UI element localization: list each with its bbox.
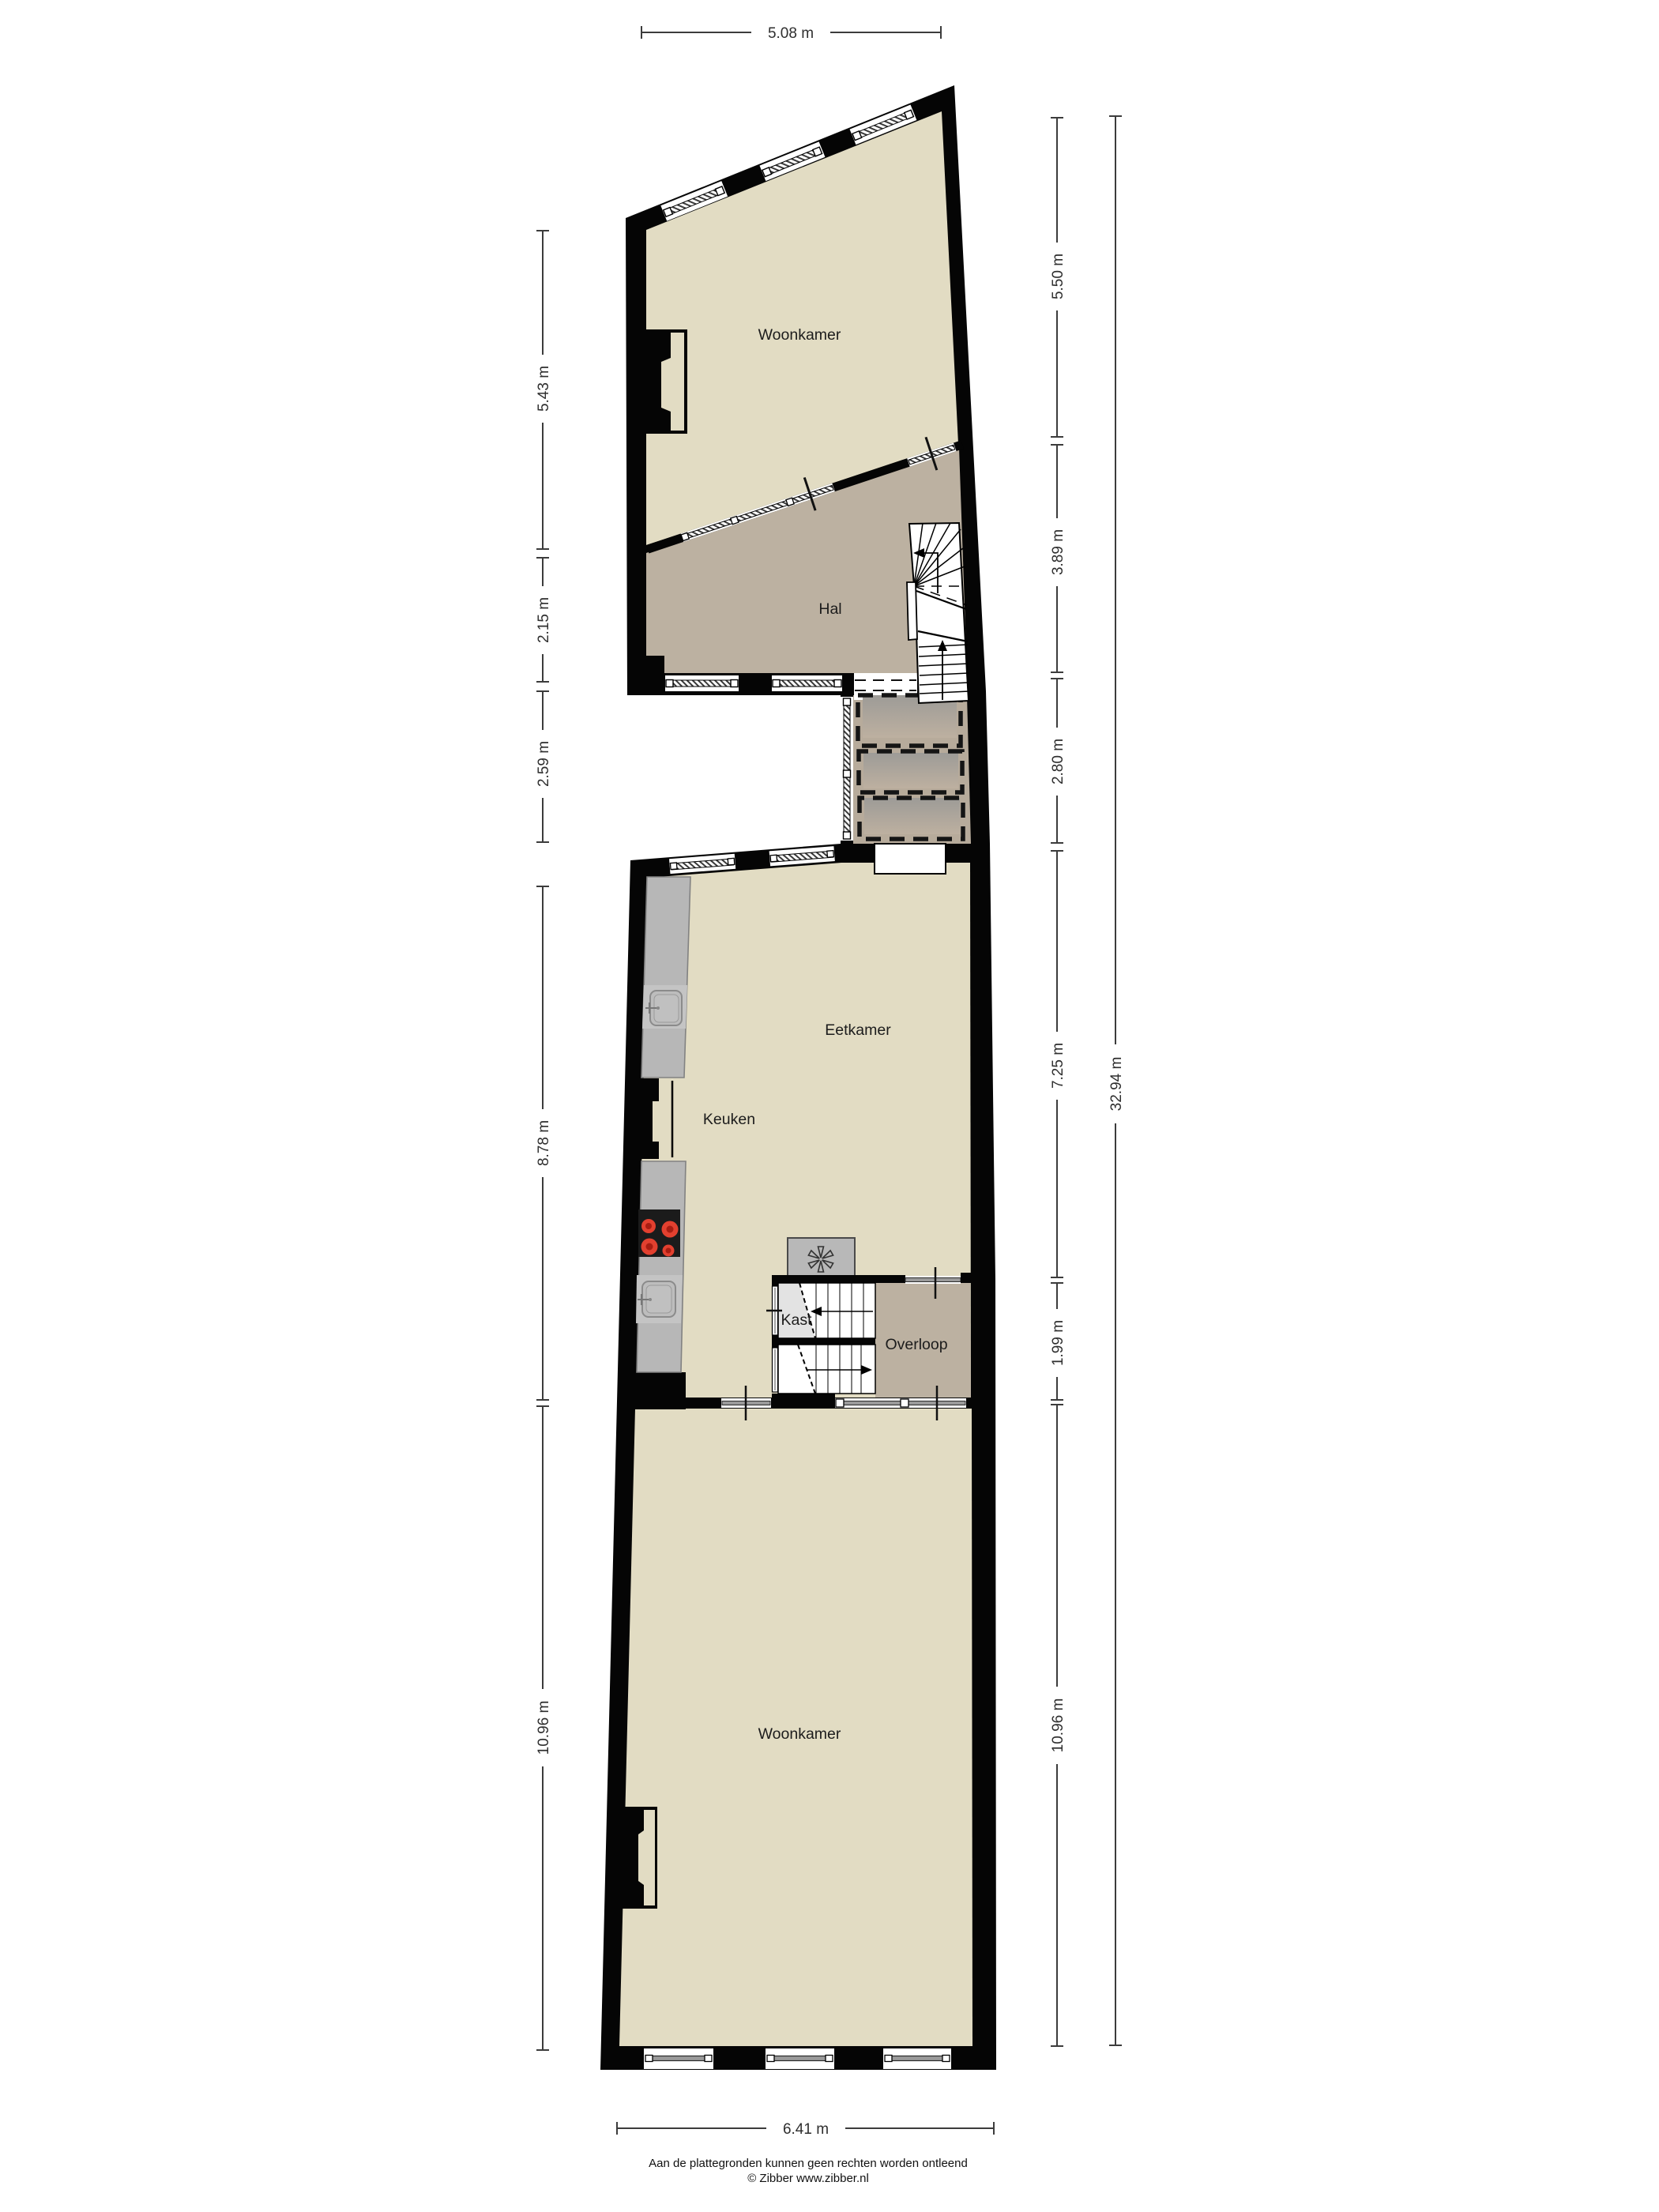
svg-text:Woonkamer: Woonkamer <box>758 1725 841 1743</box>
svg-text:5.08 m: 5.08 m <box>768 25 814 42</box>
svg-text:Woonkamer: Woonkamer <box>758 326 841 344</box>
svg-text:2.80 m: 2.80 m <box>1050 739 1066 784</box>
svg-text:32.94 m: 32.94 m <box>1108 1057 1125 1112</box>
svg-text:6.41 m: 6.41 m <box>783 2121 829 2138</box>
svg-text:Kast: Kast <box>781 1311 812 1329</box>
svg-text:10.96 m: 10.96 m <box>1050 1698 1066 1753</box>
svg-text:3.89 m: 3.89 m <box>1050 529 1066 575</box>
svg-text:10.96 m: 10.96 m <box>536 1701 552 1755</box>
svg-text:5.43 m: 5.43 m <box>536 366 552 412</box>
svg-text:Keuken: Keuken <box>703 1111 755 1128</box>
svg-text:7.25 m: 7.25 m <box>1050 1043 1066 1089</box>
svg-text:5.50 m: 5.50 m <box>1050 254 1066 299</box>
svg-text:© Zibber www.zibber.nl: © Zibber www.zibber.nl <box>747 2172 869 2185</box>
svg-text:Eetkamer: Eetkamer <box>825 1021 891 1039</box>
svg-text:Overloop: Overloop <box>885 1336 947 1353</box>
svg-text:2.15 m: 2.15 m <box>536 597 552 643</box>
svg-text:8.78 m: 8.78 m <box>536 1120 552 1166</box>
svg-text:Aan de plattegronden kunnen ge: Aan de plattegronden kunnen geen rechten… <box>649 2157 968 2170</box>
svg-text:1.99 m: 1.99 m <box>1050 1320 1066 1366</box>
svg-text:Hal: Hal <box>818 600 841 618</box>
svg-text:2.59 m: 2.59 m <box>536 741 552 787</box>
